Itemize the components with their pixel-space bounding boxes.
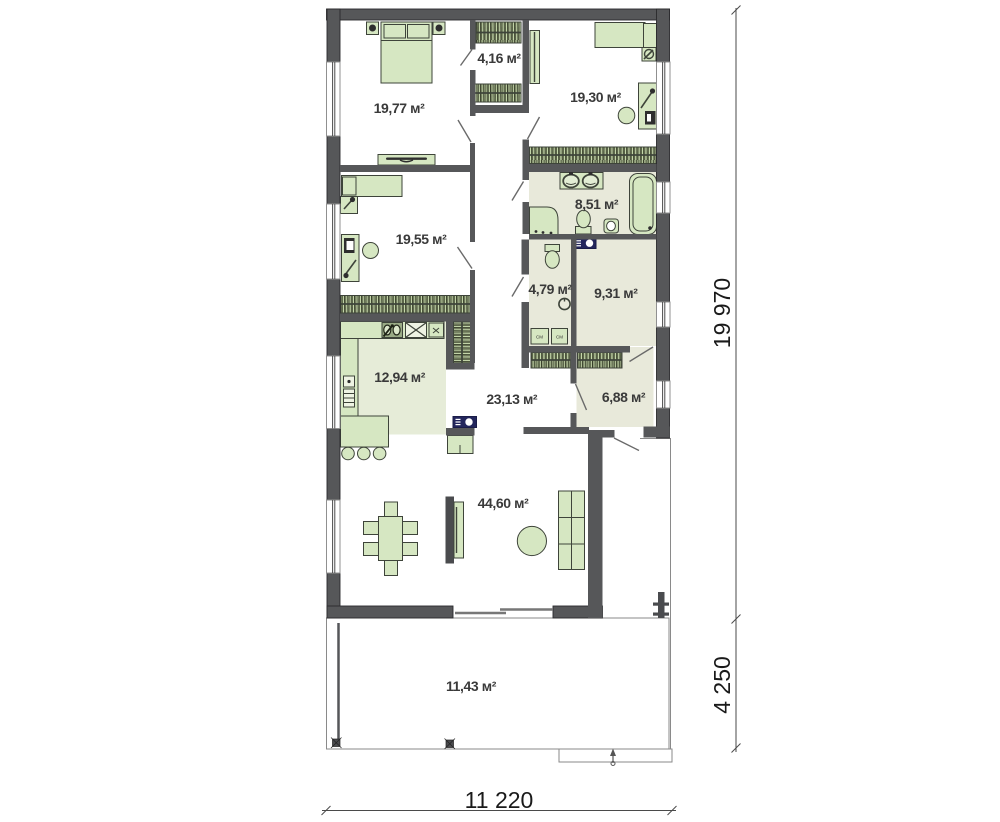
- svg-text:4 250: 4 250: [709, 656, 735, 714]
- svg-text:6,88 м²: 6,88 м²: [602, 389, 646, 405]
- svg-text:19 970: 19 970: [709, 278, 735, 348]
- svg-text:9,31 м²: 9,31 м²: [594, 285, 638, 301]
- svg-text:11,43 м²: 11,43 м²: [446, 678, 497, 694]
- svg-text:8,51 м²: 8,51 м²: [575, 196, 619, 212]
- svg-text:23,13 м²: 23,13 м²: [486, 391, 537, 407]
- svg-text:44,60 м²: 44,60 м²: [478, 495, 529, 511]
- svg-text:19,77 м²: 19,77 м²: [374, 100, 425, 116]
- svg-text:19,30 м²: 19,30 м²: [570, 89, 621, 105]
- svg-text:11 220: 11 220: [465, 787, 534, 813]
- svg-text:4,79 м²: 4,79 м²: [528, 281, 572, 297]
- svg-text:СМ: СМ: [536, 335, 543, 340]
- svg-text:19,55 м²: 19,55 м²: [396, 231, 447, 247]
- svg-text:4,16 м²: 4,16 м²: [477, 50, 521, 66]
- svg-text:СМ: СМ: [556, 335, 563, 340]
- svg-text:12,94 м²: 12,94 м²: [374, 369, 425, 385]
